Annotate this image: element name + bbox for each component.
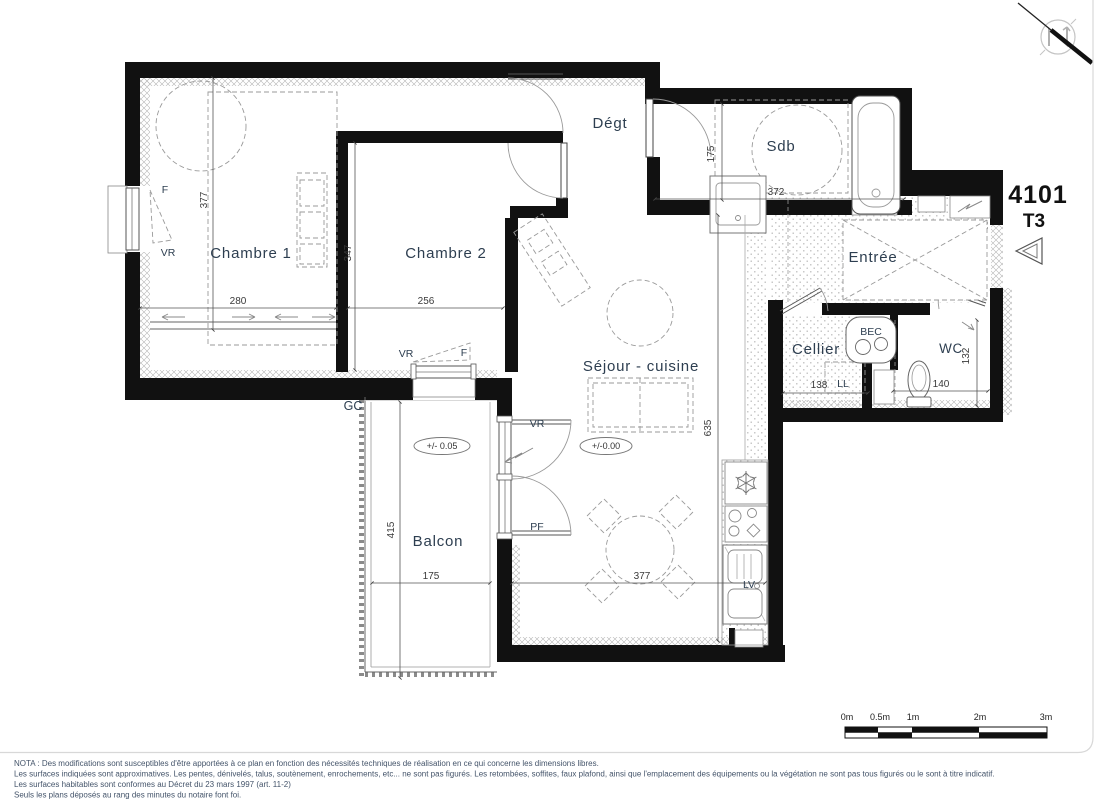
door-balcon-double <box>505 420 571 535</box>
label-shutter-vr-sejour: VR <box>530 418 545 430</box>
label-bec: BEC <box>860 326 882 338</box>
room-label-sdb: Sdb <box>766 138 795 155</box>
wall-ch2-east <box>505 218 518 372</box>
scale-label-3m: 3m <box>1040 712 1053 722</box>
dim-balcon-width: 175 <box>423 571 440 582</box>
round-furniture-ch1 <box>156 81 246 171</box>
title-block: 4101 T3 <box>1008 181 1068 264</box>
chair <box>587 499 621 533</box>
scale-bar: 0m 0.5m 1m 2m 3m <box>841 712 1053 738</box>
roller-shutter-ch1 <box>150 190 172 243</box>
tv-unit <box>514 214 590 306</box>
door-leaf <box>561 143 567 198</box>
scale-label-2m: 2m <box>974 712 987 722</box>
kitchen-strip-floor <box>745 215 768 460</box>
room-label-wc: WC <box>939 341 963 356</box>
site-boundary-line-thick <box>1051 30 1092 63</box>
shelf-ch1 <box>297 173 327 267</box>
door-swing-arc <box>508 143 563 198</box>
wall-sejour-west-upper <box>497 395 512 419</box>
nota-line-2: Les surfaces indiquées sont approximativ… <box>14 770 995 779</box>
site-boundary-line <box>1018 3 1051 30</box>
bathtub <box>852 96 900 214</box>
dim-sdb-width: 372 <box>768 187 785 198</box>
toilet <box>908 361 930 399</box>
room-label-degt: Dégt <box>593 115 628 132</box>
door-chambre2 <box>508 143 567 198</box>
scale-label-0m: 0m <box>841 712 854 722</box>
level-sejour: +/-0.00 <box>592 441 620 451</box>
entry-direction-triangle-icon <box>1016 238 1042 264</box>
label-dishwasher-lv: LV <box>743 579 755 591</box>
level-markers: +/- 0.05 +/-0.00 <box>414 438 632 455</box>
wall-right-lower <box>990 288 1003 415</box>
dim-ch1-height: 377 <box>199 191 210 208</box>
wall-west-upper <box>125 62 140 186</box>
label-pf: PF <box>530 521 543 533</box>
room-label-cellier: Cellier <box>792 341 840 358</box>
wall-stub-horizontal <box>510 206 568 218</box>
duct-niche <box>918 196 945 212</box>
wall-cellier-wc-lower <box>862 362 872 410</box>
wall-sejour-west-lower <box>497 537 512 662</box>
wall-sejour-east <box>768 300 783 662</box>
wall-south-ch1 <box>125 378 413 400</box>
wall-entree-north <box>897 170 1003 196</box>
wall-right-stub <box>990 196 1003 225</box>
wall-ch2-north <box>348 131 563 143</box>
room-label-sejour: Séjour - cuisine <box>583 358 699 375</box>
door-leaf <box>646 99 653 157</box>
door-sdb <box>646 99 711 157</box>
scale-label-1m: 1m <box>907 712 920 722</box>
label-gc: GC <box>344 399 363 413</box>
dim-ch1-width: 280 <box>230 296 247 307</box>
sliding-closet-ch1 <box>150 314 336 329</box>
label-shutter-vr-ch1: VR <box>161 247 176 259</box>
chair <box>661 565 695 599</box>
floor-plan-drawing: 280 256 377 347 175 372 635 377 175 415 … <box>0 0 1100 800</box>
label-shutter-vr-ch2: VR <box>399 348 414 360</box>
dim-ch2-height: 347 <box>343 244 354 261</box>
windows <box>126 188 512 539</box>
wall-sejour-south <box>497 645 785 662</box>
level-balcon: +/- 0.05 <box>427 441 458 451</box>
room-label-balcon: Balcon <box>413 533 464 550</box>
dim-balcon-height: 415 <box>386 521 397 538</box>
dim-wc-width: 140 <box>933 379 950 390</box>
dim-sejour-height: 635 <box>703 419 714 436</box>
label-window-f-ch1: F <box>162 184 168 196</box>
dim-cellier-width: 138 <box>811 380 828 391</box>
door-direction-arrow-icon <box>962 322 974 330</box>
label-washer-ll: LL <box>837 378 849 390</box>
sofa <box>588 378 693 432</box>
label-window-f-ch2: F <box>461 347 467 359</box>
dim-sdb-height: 175 <box>706 145 717 162</box>
chair <box>585 569 619 603</box>
nota-line-4: Seuls les plans déposés au rang des minu… <box>14 791 241 800</box>
duct-niche <box>874 370 894 404</box>
nota-line-3: Les surfaces habitables sont conformes a… <box>14 780 291 789</box>
wall-top-left <box>125 62 645 78</box>
bec-sink <box>846 317 896 363</box>
room-label-chambre1: Chambre 1 <box>210 245 291 262</box>
wall-west-lower <box>125 252 140 385</box>
room-label-chambre2: Chambre 2 <box>405 245 486 262</box>
north-compass-icon <box>1018 3 1092 63</box>
wall-notch <box>735 630 763 647</box>
dim-sejour-width: 377 <box>634 571 651 582</box>
door-swing-arc <box>653 99 711 157</box>
sejour-round-table <box>607 280 673 346</box>
unit-type: T3 <box>1023 211 1045 232</box>
nota-block: NOTA : Des modifications sont susceptibl… <box>14 759 995 800</box>
window-ch1 <box>126 188 139 250</box>
nota-line-1: NOTA : Des modifications sont susceptibl… <box>14 759 599 768</box>
dim-ch2-width: 256 <box>418 296 435 307</box>
unit-number: 4101 <box>1008 181 1068 209</box>
window-sill-ch2 <box>413 377 475 397</box>
window-sill-ch1 <box>108 186 127 253</box>
door-swing-arc <box>508 78 563 133</box>
wall-entree-south <box>822 303 930 315</box>
bed-outline-ch1 <box>208 92 337 345</box>
room-label-entree: Entrée <box>849 249 898 266</box>
wall-south-wc-cellier <box>768 408 1003 422</box>
wall-step <box>645 62 660 104</box>
chair <box>659 495 693 529</box>
floor-plan-sheet: 280 256 377 347 175 372 635 377 175 415 … <box>0 0 1100 800</box>
scale-label-05m: 0.5m <box>870 712 890 722</box>
toilet-tank <box>907 397 931 407</box>
